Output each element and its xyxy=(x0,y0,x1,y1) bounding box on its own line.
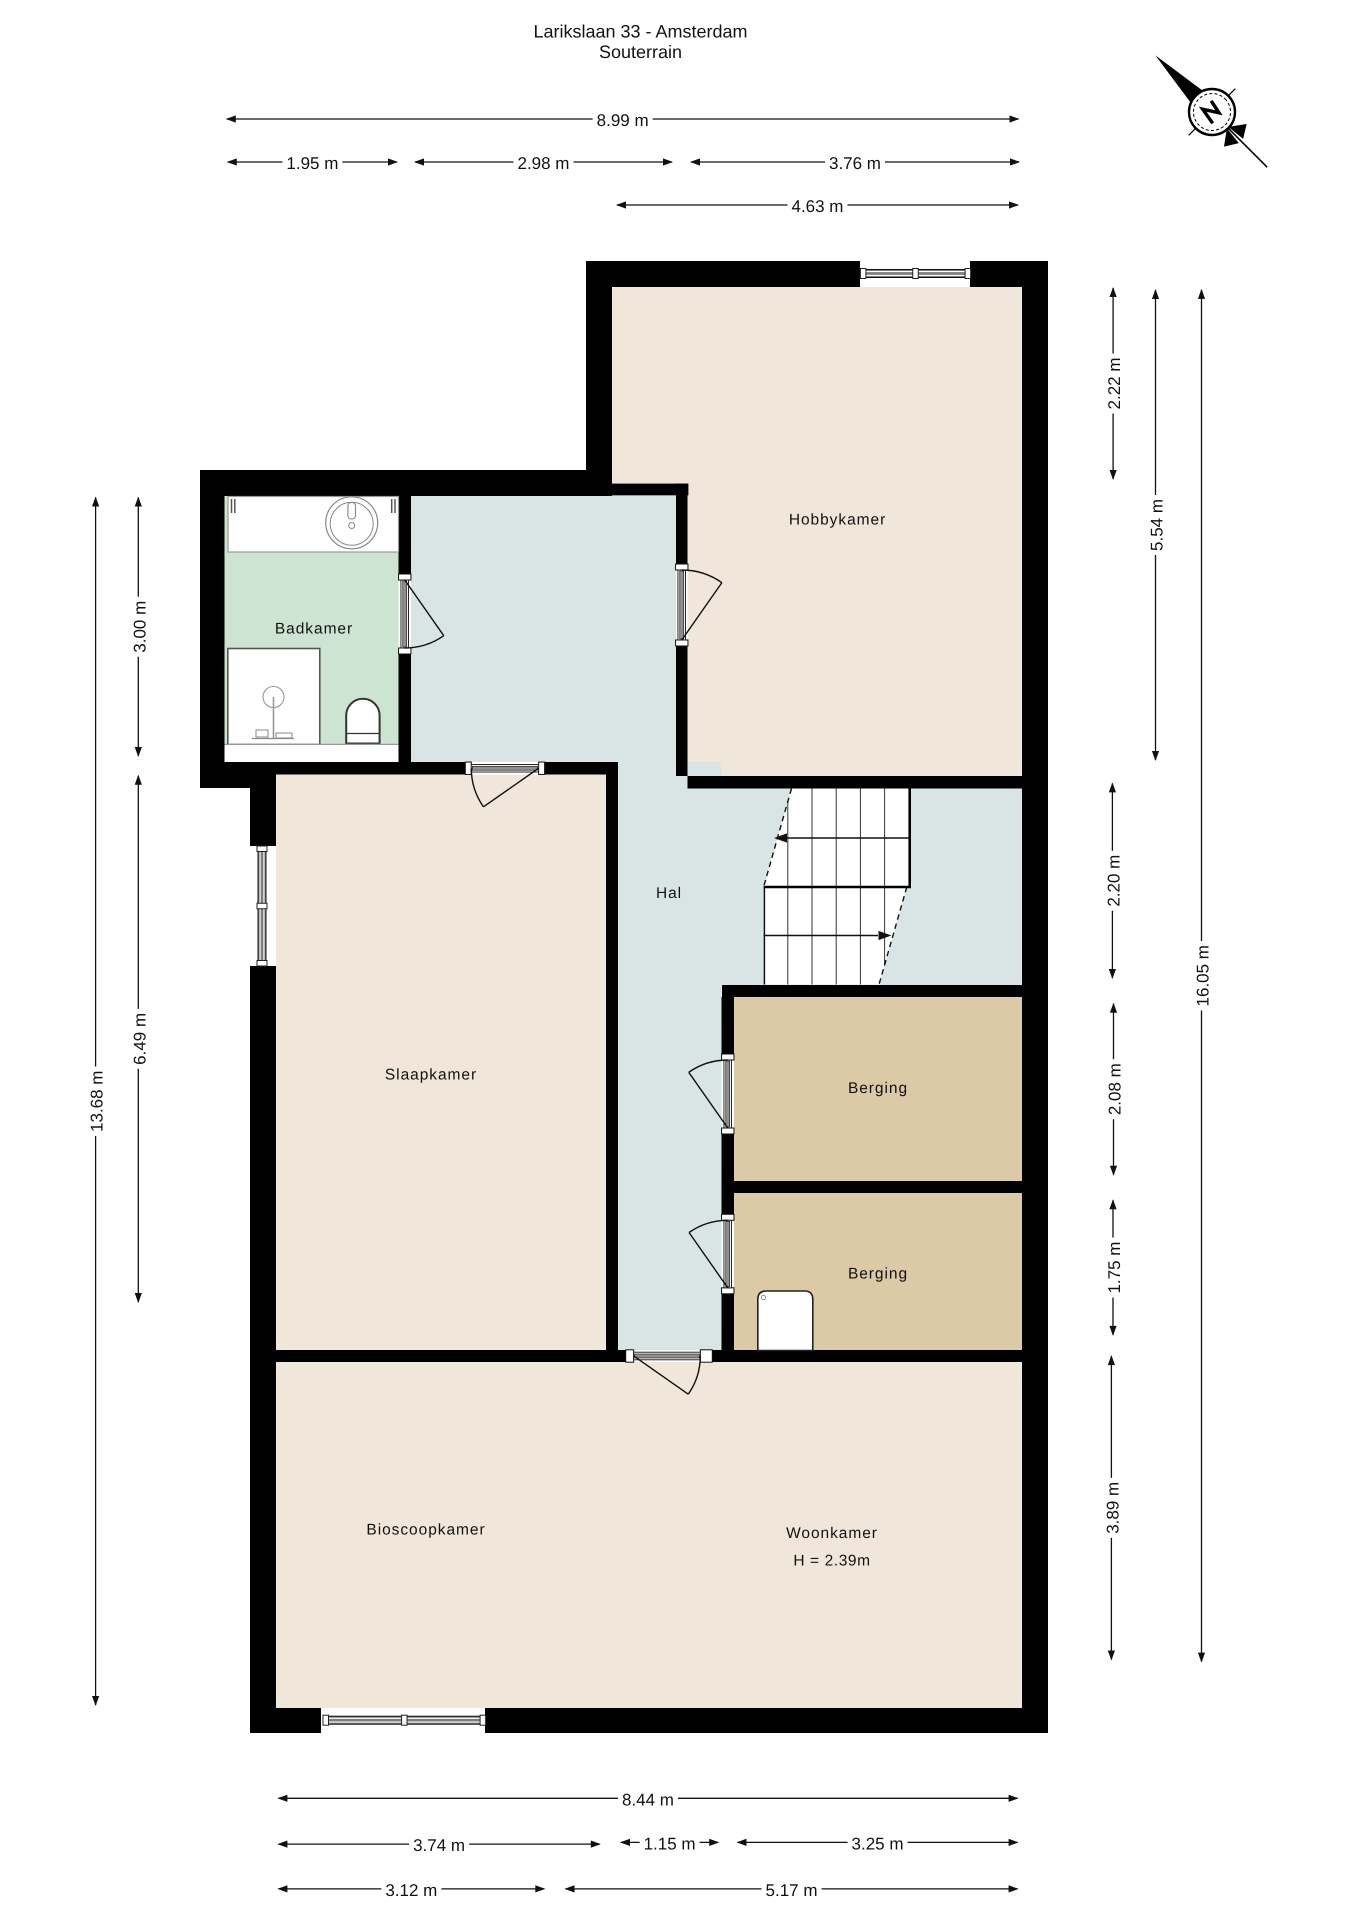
svg-text:8.44 m: 8.44 m xyxy=(622,1790,674,1809)
svg-text:Souterrain: Souterrain xyxy=(599,42,682,62)
svg-text:3.76 m: 3.76 m xyxy=(829,154,881,173)
svg-text:2.22 m: 2.22 m xyxy=(1105,358,1124,410)
svg-text:3.89 m: 3.89 m xyxy=(1103,1482,1122,1534)
svg-text:3.12 m: 3.12 m xyxy=(385,1881,437,1900)
svg-text:3.25 m: 3.25 m xyxy=(852,1834,904,1853)
svg-text:1.95 m: 1.95 m xyxy=(286,154,338,173)
svg-text:1.75 m: 1.75 m xyxy=(1105,1242,1124,1294)
svg-text:5.17 m: 5.17 m xyxy=(766,1881,818,1900)
svg-text:2.20 m: 2.20 m xyxy=(1104,855,1123,907)
svg-text:Bioscoopkamer: Bioscoopkamer xyxy=(366,1522,485,1539)
svg-text:3.00 m: 3.00 m xyxy=(130,601,149,653)
svg-text:5.54 m: 5.54 m xyxy=(1148,499,1167,551)
svg-text:4.63 m: 4.63 m xyxy=(792,197,844,216)
svg-text:Slaapkamer: Slaapkamer xyxy=(385,1067,477,1084)
svg-text:Hal: Hal xyxy=(656,885,682,902)
svg-text:H = 2.39m: H = 2.39m xyxy=(793,1553,870,1570)
svg-text:13.68 m: 13.68 m xyxy=(88,1071,107,1132)
svg-text:Hobbykamer: Hobbykamer xyxy=(789,512,886,529)
svg-text:3.74 m: 3.74 m xyxy=(413,1836,465,1855)
svg-text:6.49 m: 6.49 m xyxy=(130,1013,149,1065)
svg-text:16.05 m: 16.05 m xyxy=(1194,945,1213,1006)
svg-text:2.98 m: 2.98 m xyxy=(518,154,570,173)
svg-text:Woonkamer: Woonkamer xyxy=(786,1525,878,1542)
svg-text:Berging: Berging xyxy=(848,1266,908,1283)
svg-text:Berging: Berging xyxy=(848,1080,908,1097)
svg-text:Larikslaan 33 - Amsterdam: Larikslaan 33 - Amsterdam xyxy=(533,22,747,42)
svg-text:1.15 m: 1.15 m xyxy=(644,1834,696,1853)
svg-text:8.99 m: 8.99 m xyxy=(597,111,649,130)
svg-text:2.08 m: 2.08 m xyxy=(1106,1063,1125,1115)
svg-text:Badkamer: Badkamer xyxy=(275,621,353,638)
